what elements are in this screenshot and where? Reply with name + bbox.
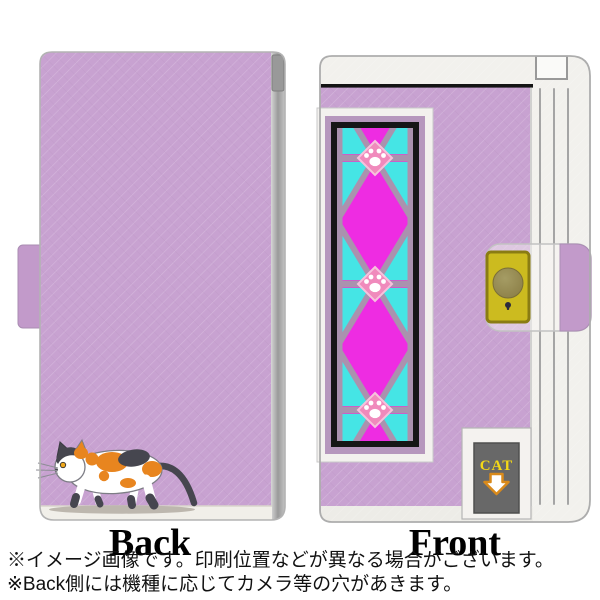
asanoha-paw-pattern <box>337 95 413 473</box>
spine-top-square <box>536 56 567 79</box>
disclaimer-line-2: ※Back側には機種に応じてカメラ等の穴があきます。 <box>7 573 599 597</box>
snap-button <box>487 252 529 322</box>
cat-shadow <box>49 505 195 513</box>
disclaimer-notes: ※イメージ画像です。印刷位置などが異なる場合がございます。 ※Back側には機種… <box>7 549 599 597</box>
front-top-black-line <box>321 84 533 88</box>
decorative-panel <box>317 95 433 473</box>
cat-tag-text: CAT <box>480 458 514 474</box>
disclaimer-line-1: ※イメージ画像です。印刷位置などが異なる場合がございます。 <box>7 549 599 573</box>
product-image: CAT Back Front ※イメージ画像です。印刷位置などが異なる場合がござ… <box>0 0 600 600</box>
cat-tag: CAT <box>462 428 531 519</box>
cat-eye <box>60 462 65 467</box>
back-top-notch <box>272 55 284 91</box>
back-case <box>18 52 285 520</box>
front-case: CAT <box>317 56 591 522</box>
clasp-strap <box>486 244 591 331</box>
back-spine-edge <box>271 52 285 520</box>
phone-case-artwork: CAT <box>0 0 600 600</box>
